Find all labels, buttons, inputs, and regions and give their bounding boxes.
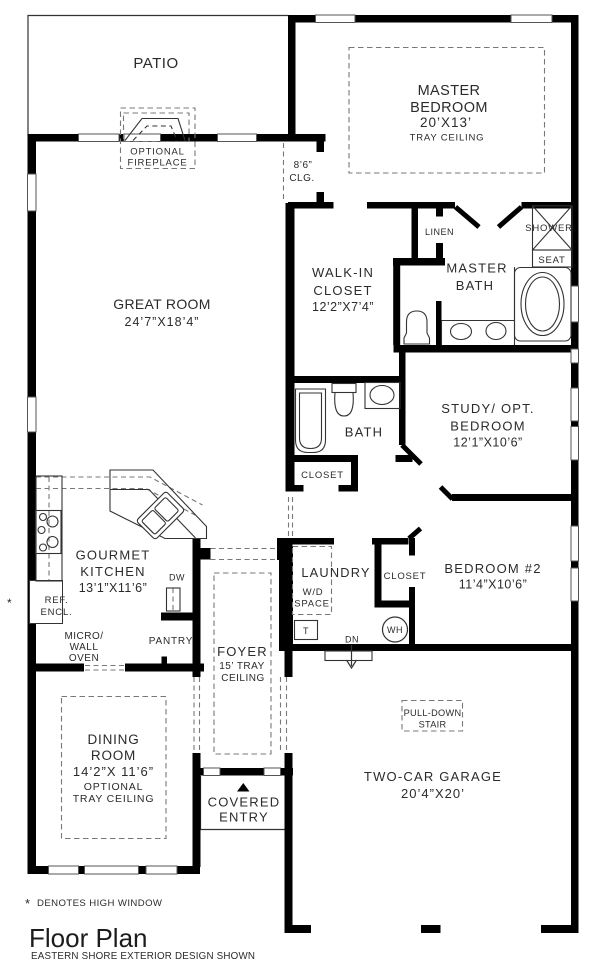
svg-text:ENTRY: ENTRY <box>219 810 269 825</box>
svg-text:BEDROOM #2: BEDROOM #2 <box>444 561 541 576</box>
svg-text:TRAY CEILING: TRAY CEILING <box>410 133 485 144</box>
svg-text:DW: DW <box>169 573 185 583</box>
svg-text:ROOM: ROOM <box>91 748 136 763</box>
svg-text:24’7”X18’4”: 24’7”X18’4” <box>125 315 200 329</box>
svg-text:EASTERN SHORE EXTERIOR DESIGN: EASTERN SHORE EXTERIOR DESIGN SHOWN <box>31 951 255 962</box>
svg-text:MASTER: MASTER <box>446 261 507 276</box>
svg-text:OPTIONAL: OPTIONAL <box>84 781 144 793</box>
svg-text:LAUNDRY: LAUNDRY <box>301 565 370 580</box>
svg-text:11’4”X10’6”: 11’4”X10’6” <box>459 578 528 592</box>
svg-text:CLOSET: CLOSET <box>301 470 344 481</box>
svg-text:KITCHEN: KITCHEN <box>80 564 145 579</box>
svg-text:WH: WH <box>387 625 403 635</box>
svg-text:14’2”X 11’6”: 14’2”X 11’6” <box>73 764 154 779</box>
svg-text:PULL-DOWN: PULL-DOWN <box>404 708 462 718</box>
svg-text:*: * <box>25 896 30 911</box>
svg-text:GREAT ROOM: GREAT ROOM <box>113 296 210 312</box>
svg-text:COVERED: COVERED <box>208 795 281 810</box>
svg-text:CLOSET: CLOSET <box>384 571 427 582</box>
svg-text:SEAT: SEAT <box>538 255 565 266</box>
svg-text:20’X13’: 20’X13’ <box>420 115 472 130</box>
svg-text:12’2”X7’4”: 12’2”X7’4” <box>312 300 374 314</box>
svg-text:REF.: REF. <box>45 595 69 606</box>
svg-text:GOURMET: GOURMET <box>76 548 151 563</box>
svg-text:FOYER: FOYER <box>217 644 268 659</box>
svg-text:STUDY/ OPT.: STUDY/ OPT. <box>441 401 534 416</box>
svg-text:DINING: DINING <box>87 732 139 747</box>
svg-text:Floor Plan: Floor Plan <box>29 923 148 953</box>
svg-text:20’4”X20’: 20’4”X20’ <box>401 786 465 801</box>
svg-text:CLOSET: CLOSET <box>313 283 372 298</box>
svg-text:PATIO: PATIO <box>133 55 178 72</box>
svg-text:STAIR: STAIR <box>419 720 447 730</box>
svg-text:MICRO/: MICRO/ <box>64 631 103 642</box>
svg-text:DN: DN <box>345 635 359 645</box>
svg-text:T: T <box>303 626 309 636</box>
svg-text:W/D: W/D <box>303 587 324 598</box>
svg-text:WALL: WALL <box>70 642 99 653</box>
svg-text:ENCL.: ENCL. <box>41 607 73 618</box>
svg-text:12’1”X10’6”: 12’1”X10’6” <box>453 436 522 450</box>
svg-text:BATH: BATH <box>345 425 384 440</box>
svg-text:LINEN: LINEN <box>425 227 454 237</box>
svg-text:SHOWER: SHOWER <box>525 223 573 234</box>
svg-text:OVEN: OVEN <box>69 653 99 664</box>
svg-text:TWO-CAR GARAGE: TWO-CAR GARAGE <box>364 769 502 784</box>
svg-text:DENOTES HIGH WINDOW: DENOTES HIGH WINDOW <box>37 898 163 909</box>
svg-text:PANTRY: PANTRY <box>149 636 193 647</box>
svg-text:BEDROOM: BEDROOM <box>450 419 526 434</box>
svg-text:13’1”X11’6”: 13’1”X11’6” <box>79 581 148 595</box>
svg-text:8’6”: 8’6” <box>294 160 313 171</box>
svg-text:MASTER: MASTER <box>418 83 481 99</box>
svg-text:*: * <box>7 596 12 610</box>
svg-text:15’ TRAY: 15’ TRAY <box>219 661 265 672</box>
svg-text:OPTIONAL: OPTIONAL <box>130 147 184 158</box>
svg-text:FIREPLACE: FIREPLACE <box>128 158 188 169</box>
svg-text:BEDROOM: BEDROOM <box>410 100 488 116</box>
svg-text:TRAY CEILING: TRAY CEILING <box>73 793 155 805</box>
svg-text:SPACE: SPACE <box>294 599 330 610</box>
svg-text:WALK-IN: WALK-IN <box>312 265 374 280</box>
svg-text:BATH: BATH <box>456 278 495 293</box>
svg-text:CEILING: CEILING <box>221 673 265 684</box>
svg-text:CLG.: CLG. <box>289 173 314 184</box>
